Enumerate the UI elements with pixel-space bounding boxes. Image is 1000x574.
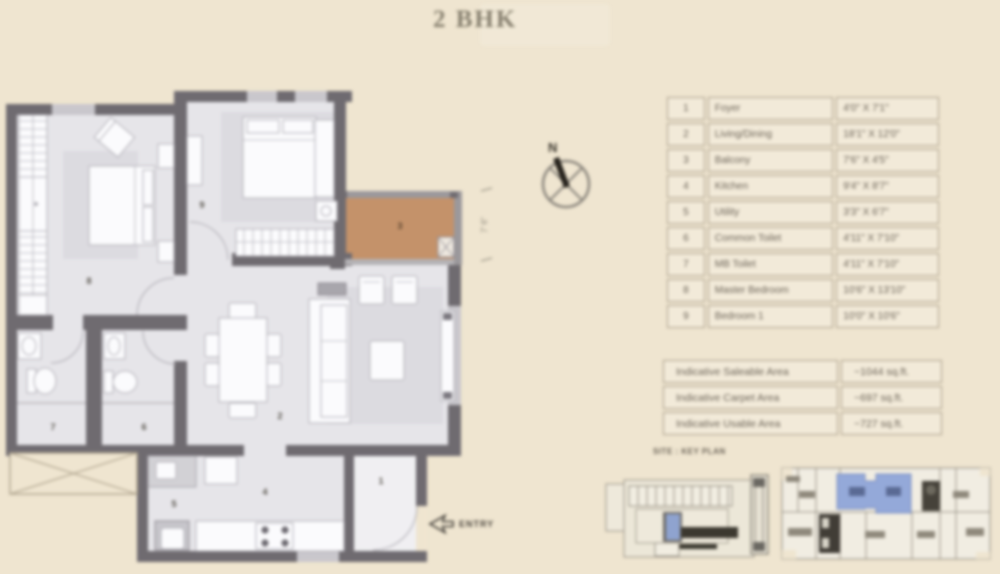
svg-text:3: 3 [397,221,402,231]
svg-text:7: 7 [50,422,55,432]
svg-text:8: 8 [86,276,91,286]
svg-text:6: 6 [141,422,146,432]
svg-text:ENTRY: ENTRY [459,519,494,529]
svg-text:4: 4 [262,487,267,497]
svg-text:5: 5 [171,499,176,509]
svg-text:1: 1 [378,476,383,486]
svg-text:7' 6": 7' 6" [480,217,489,233]
svg-text:N: N [548,140,557,155]
svg-text:9: 9 [199,200,204,210]
svg-text:2: 2 [277,411,282,421]
